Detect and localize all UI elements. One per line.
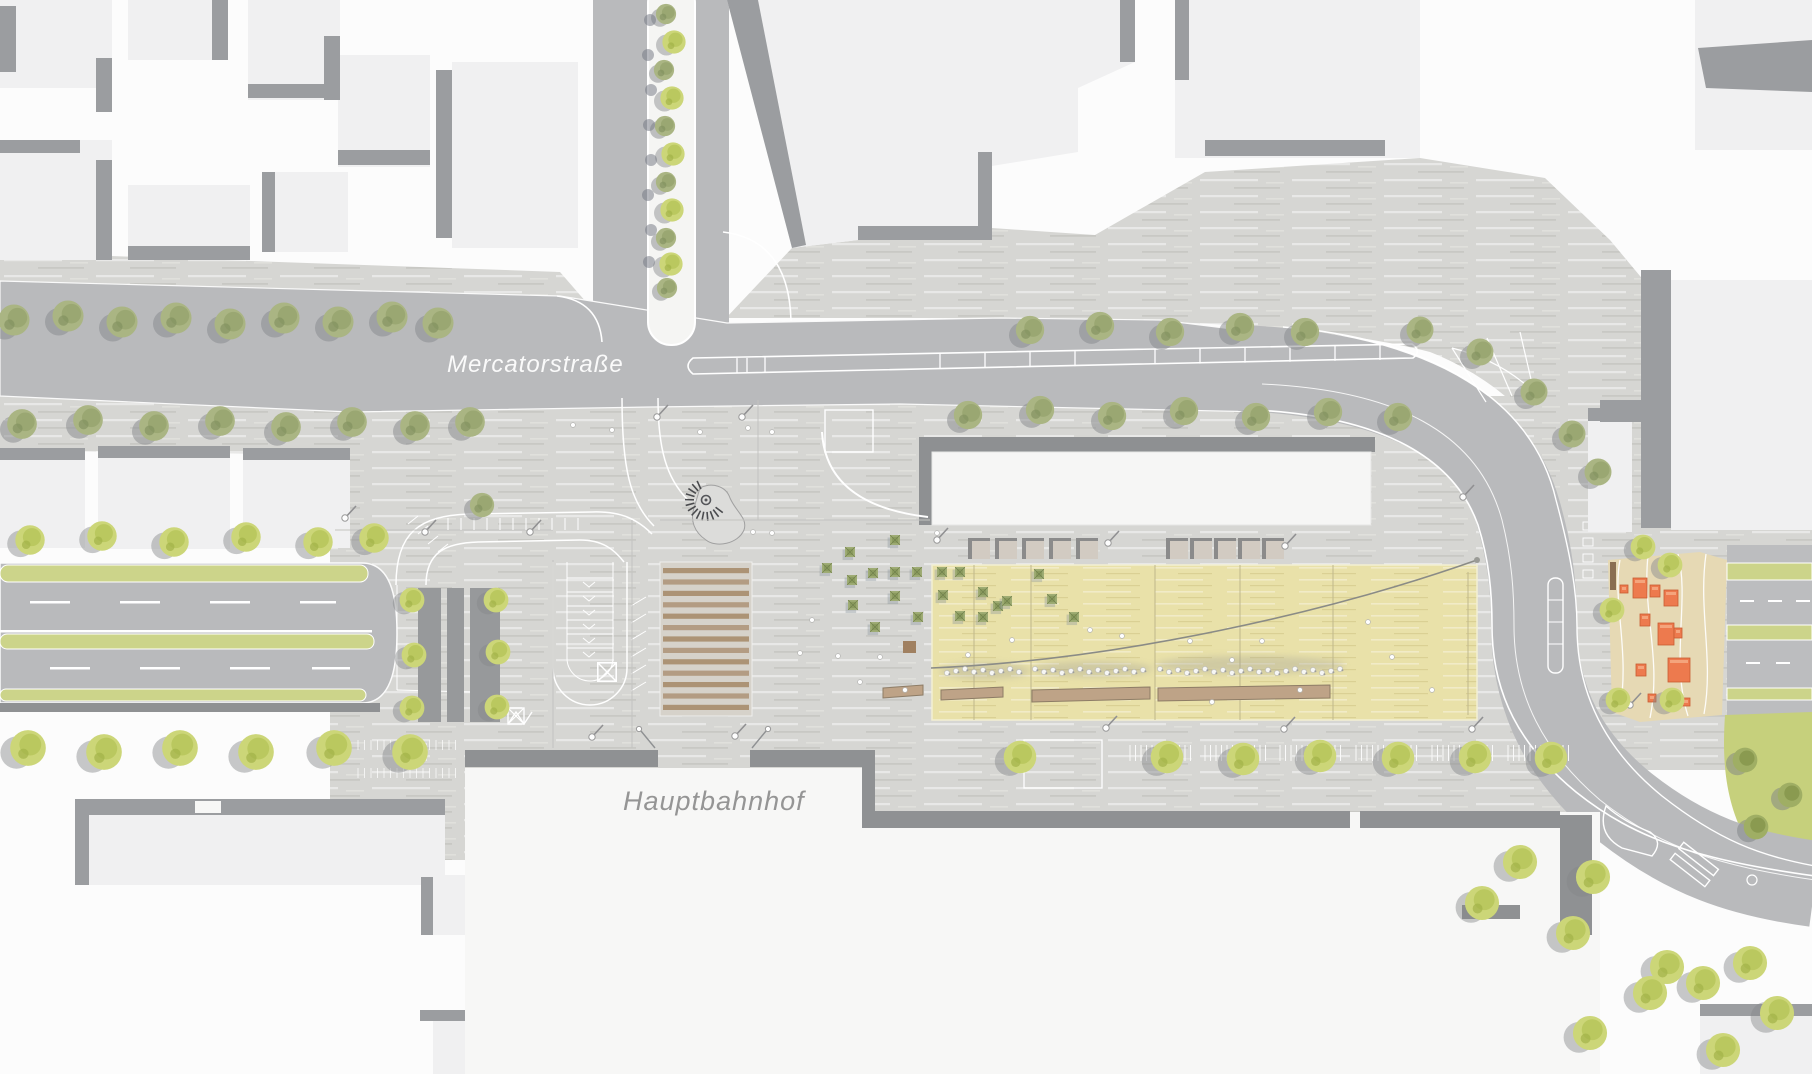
street-label: Mercatorstraße: [447, 351, 624, 378]
site-plan-page: Mercatorstraße Hauptbahnhof: [0, 0, 1812, 1074]
wooden-stairs: [660, 562, 752, 716]
building-top-center: [727, 0, 1135, 248]
station-label: Hauptbahnhof: [623, 786, 806, 816]
building-shadow-top-right: [1698, 40, 1812, 92]
plaza-carpet: [883, 557, 1480, 720]
tunnel-portal-road: [0, 563, 397, 712]
pavilion-building: [919, 437, 1375, 525]
playground-wall: [1610, 562, 1616, 590]
site-plan-canvas: Mercatorstraße Hauptbahnhof: [0, 0, 1812, 1074]
